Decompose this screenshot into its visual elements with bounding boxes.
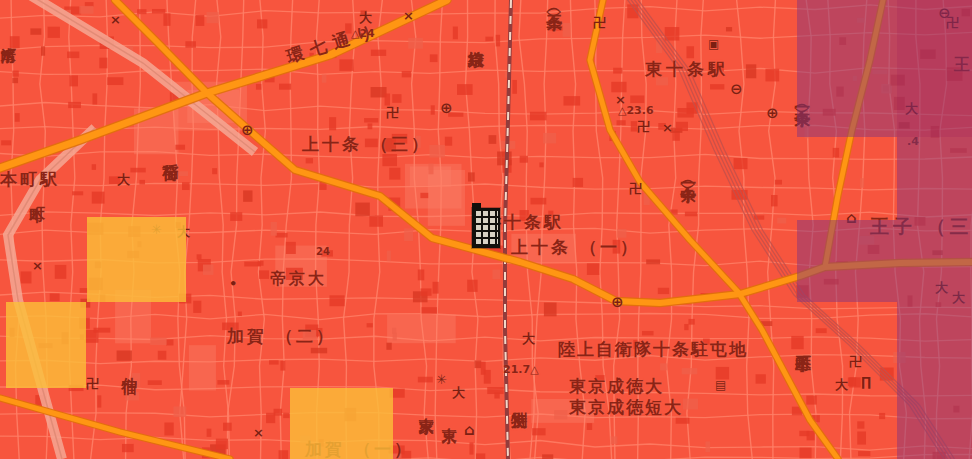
building-marker-roof xyxy=(472,203,481,209)
map-canvas[interactable]: 清水町本町駅本町稲荷台環七通り△24上十条 （三）埼京線十条（三）東十条駅△23… xyxy=(0,0,972,459)
building-marker-icon[interactable] xyxy=(472,208,500,248)
